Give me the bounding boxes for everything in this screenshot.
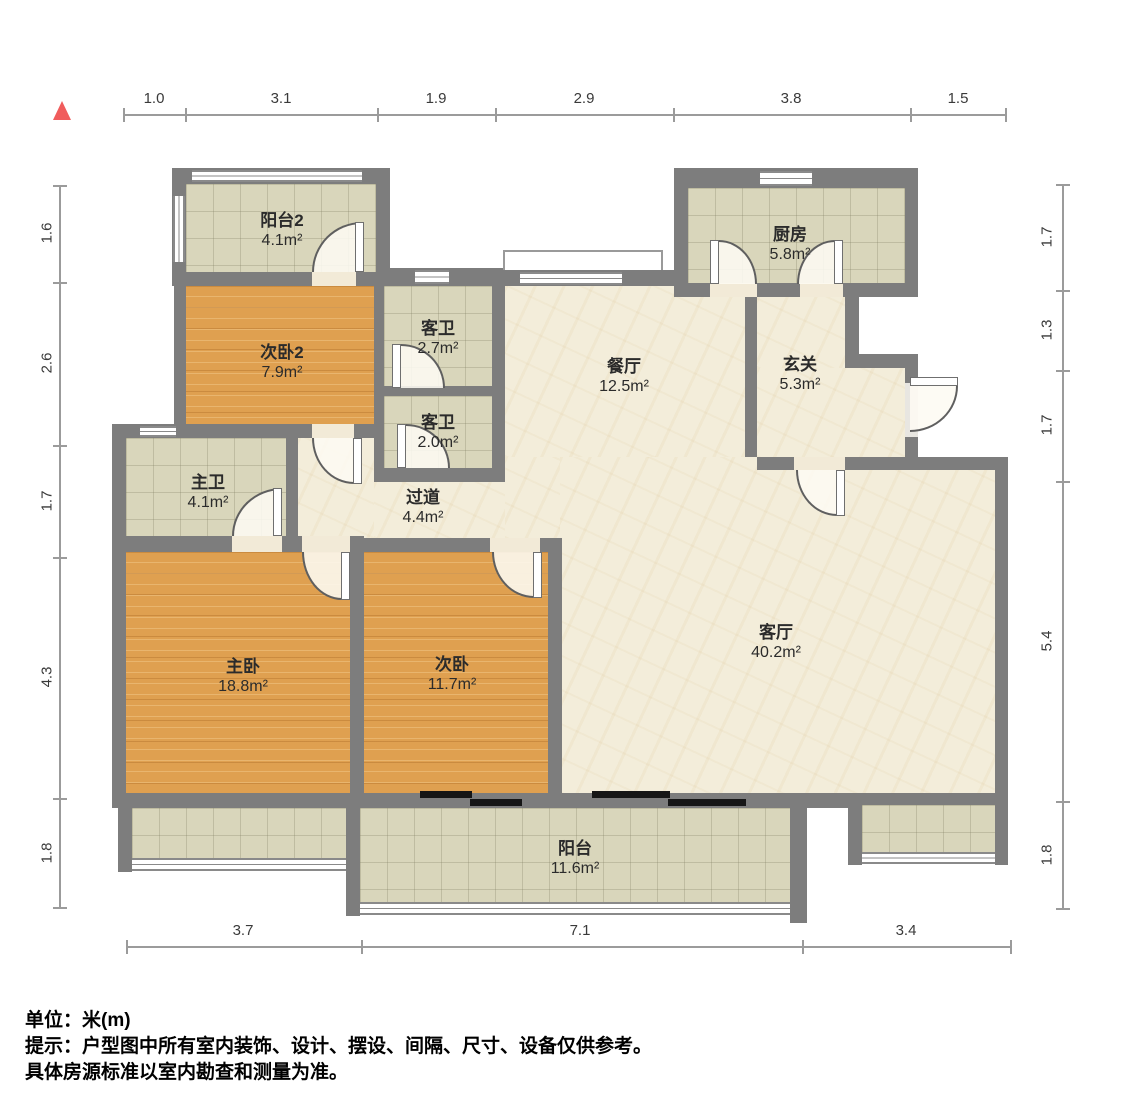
dimension-tick bbox=[1056, 184, 1070, 186]
room-area: 2.7m² bbox=[418, 339, 459, 359]
main-entry-door-leaf bbox=[910, 377, 958, 386]
room-floor-balcony-east bbox=[862, 805, 995, 852]
wall bbox=[374, 286, 384, 468]
window bbox=[140, 426, 176, 437]
dimension-label: 4.3 bbox=[39, 667, 56, 688]
sliding-door bbox=[470, 799, 522, 806]
room-area: 18.8m² bbox=[218, 677, 268, 697]
dimension-tick bbox=[53, 282, 67, 284]
window bbox=[520, 272, 622, 285]
wall bbox=[376, 184, 390, 272]
dimension-label: 1.7 bbox=[1039, 227, 1056, 248]
dimension-tick bbox=[53, 798, 67, 800]
dimension-tick bbox=[910, 108, 912, 122]
door-opening bbox=[232, 536, 282, 552]
wall bbox=[995, 470, 1008, 865]
wall bbox=[112, 536, 232, 552]
dimension-tick bbox=[1056, 370, 1070, 372]
wall bbox=[674, 188, 688, 297]
door-leaf bbox=[836, 470, 845, 516]
dimension-label: 1.3 bbox=[1039, 320, 1056, 341]
wall bbox=[790, 793, 807, 923]
dimension-line-left bbox=[59, 185, 61, 909]
dimension-tick bbox=[495, 108, 497, 122]
door-opening bbox=[800, 283, 843, 297]
window-rail bbox=[360, 902, 790, 915]
window bbox=[173, 196, 185, 262]
wall bbox=[845, 354, 918, 368]
wall bbox=[548, 538, 562, 793]
window-rail bbox=[132, 858, 346, 871]
room-area: 2.0m² bbox=[418, 433, 459, 453]
wall bbox=[848, 793, 862, 865]
room-name: 客厅 bbox=[751, 622, 801, 643]
room-area: 11.6m² bbox=[551, 859, 600, 879]
wall bbox=[757, 283, 800, 297]
wall bbox=[374, 468, 505, 482]
dimension-label: 7.1 bbox=[570, 922, 591, 939]
room-label-master-bath: 主卫 4.1m² bbox=[188, 472, 229, 513]
dimension-label: 2.6 bbox=[39, 353, 56, 374]
sliding-door bbox=[668, 799, 746, 806]
door-leaf bbox=[392, 344, 401, 388]
dimension-label: 3.4 bbox=[896, 922, 917, 939]
dimension-tick bbox=[123, 108, 125, 122]
window bbox=[760, 171, 812, 186]
dimension-tick bbox=[673, 108, 675, 122]
bay-window bbox=[503, 250, 663, 272]
room-label-bedroom2: 次卧2 7.9m² bbox=[260, 342, 303, 383]
dimension-label: 1.7 bbox=[39, 491, 56, 512]
dimension-label: 1.5 bbox=[948, 90, 969, 107]
door-leaf bbox=[834, 240, 843, 284]
room-name: 次卧 bbox=[428, 654, 477, 675]
dimension-tick bbox=[1056, 908, 1070, 910]
room-name: 客卫 bbox=[418, 412, 459, 433]
room-floor-planter bbox=[132, 808, 346, 858]
door-leaf bbox=[397, 424, 406, 468]
dimension-tick bbox=[1056, 290, 1070, 292]
door-leaf bbox=[353, 438, 362, 484]
footnotes: 单位：米(m) 提示：户型图中所有室内装饰、设计、摆设、间隔、尺寸、设备仅供参考… bbox=[25, 1008, 652, 1086]
room-label-dining: 餐厅 12.5m² bbox=[599, 356, 649, 397]
wall bbox=[745, 297, 757, 457]
wall bbox=[674, 283, 710, 297]
room-label-master-bedroom: 主卧 18.8m² bbox=[218, 656, 268, 697]
door-leaf bbox=[533, 552, 542, 598]
room-label-entry: 玄关 5.3m² bbox=[780, 354, 821, 395]
room-area: 4.4m² bbox=[403, 508, 444, 528]
dimension-line-bottom bbox=[126, 946, 1012, 948]
dimension-tick bbox=[802, 940, 804, 954]
north-triangle-icon bbox=[53, 101, 71, 120]
dimension-label: 1.6 bbox=[39, 223, 56, 244]
wall bbox=[364, 538, 490, 552]
room-area: 5.3m² bbox=[780, 375, 821, 395]
room-area: 5.8m² bbox=[770, 245, 811, 265]
room-area: 4.1m² bbox=[260, 231, 303, 251]
door-opening bbox=[312, 424, 354, 438]
wall bbox=[843, 283, 918, 297]
dimension-line-top bbox=[123, 114, 1007, 116]
dimension-tick bbox=[53, 907, 67, 909]
wall bbox=[112, 438, 126, 793]
room-name: 玄关 bbox=[780, 354, 821, 375]
wall bbox=[282, 536, 302, 552]
dimension-tick bbox=[377, 108, 379, 122]
dimension-tick bbox=[53, 185, 67, 187]
window bbox=[192, 170, 362, 182]
wall bbox=[286, 424, 298, 536]
sliding-door bbox=[420, 791, 472, 798]
dimension-tick bbox=[1005, 108, 1007, 122]
dimension-label: 2.9 bbox=[574, 90, 595, 107]
dimension-label: 1.8 bbox=[1039, 845, 1056, 866]
room-label-guest-bath-lower: 客卫 2.0m² bbox=[418, 412, 459, 453]
hint-note-2: 具体房源标准以室内勘查和测量为准。 bbox=[25, 1060, 652, 1086]
window bbox=[415, 270, 449, 284]
hint-note: 提示：户型图中所有室内装饰、设计、摆设、间隔、尺寸、设备仅供参考。 bbox=[25, 1034, 652, 1060]
room-name: 过道 bbox=[403, 487, 444, 508]
wall bbox=[905, 168, 918, 297]
door-opening bbox=[490, 538, 540, 552]
wall bbox=[757, 457, 794, 470]
door-leaf bbox=[710, 240, 719, 284]
room-name: 次卧2 bbox=[260, 342, 303, 363]
dimension-tick bbox=[53, 557, 67, 559]
main-entry-door-swing bbox=[910, 386, 958, 432]
door-opening bbox=[794, 457, 845, 470]
sliding-door bbox=[592, 791, 670, 798]
window-rail bbox=[862, 852, 995, 864]
dimension-tick bbox=[1056, 481, 1070, 483]
wall bbox=[354, 424, 382, 438]
door-opening bbox=[312, 272, 356, 286]
wall bbox=[174, 286, 186, 424]
dimension-label: 1.8 bbox=[39, 843, 56, 864]
room-name: 阳台 bbox=[551, 838, 600, 859]
room-name: 客卫 bbox=[418, 318, 459, 339]
room-label-balcony: 阳台 11.6m² bbox=[551, 838, 600, 879]
door-opening bbox=[302, 536, 350, 552]
dimension-label: 3.7 bbox=[233, 922, 254, 939]
room-label-balcony2: 阳台2 4.1m² bbox=[260, 210, 303, 251]
room-name: 餐厅 bbox=[599, 356, 649, 377]
dimension-tick bbox=[1010, 940, 1012, 954]
unit-note: 单位：米(m) bbox=[25, 1008, 652, 1034]
room-name: 阳台2 bbox=[260, 210, 303, 231]
dimension-tick bbox=[185, 108, 187, 122]
dimension-label: 1.0 bbox=[144, 90, 165, 107]
room-area: 12.5m² bbox=[599, 377, 649, 397]
dimension-tick bbox=[361, 940, 363, 954]
wall bbox=[172, 272, 390, 286]
dimension-label: 3.8 bbox=[781, 90, 802, 107]
room-label-guest-bath-upper: 客卫 2.7m² bbox=[418, 318, 459, 359]
wall bbox=[112, 793, 358, 808]
dimension-tick bbox=[1056, 801, 1070, 803]
floorplan-canvas: 阳台2 4.1m² 次卧2 7.9m² 客卫 2.7m² 客卫 2.0m² 餐厅… bbox=[0, 0, 1125, 1098]
dimension-label: 1.7 bbox=[1039, 415, 1056, 436]
room-area: 4.1m² bbox=[188, 493, 229, 513]
room-label-hallway: 过道 4.4m² bbox=[403, 487, 444, 528]
room-name: 主卧 bbox=[218, 656, 268, 677]
room-area: 7.9m² bbox=[260, 363, 303, 383]
room-label-kitchen: 厨房 5.8m² bbox=[770, 224, 811, 265]
wall bbox=[845, 457, 1008, 470]
room-label-living: 客厅 40.2m² bbox=[751, 622, 801, 663]
wall bbox=[286, 424, 312, 438]
wall bbox=[118, 808, 132, 872]
wall bbox=[492, 286, 505, 482]
dimension-label: 1.9 bbox=[426, 90, 447, 107]
room-area: 11.7m² bbox=[428, 675, 477, 695]
dimension-label: 3.1 bbox=[271, 90, 292, 107]
door-leaf bbox=[341, 552, 350, 600]
wall bbox=[848, 793, 995, 805]
wall bbox=[350, 536, 364, 793]
dimension-tick bbox=[126, 940, 128, 954]
door-leaf bbox=[355, 222, 364, 272]
wall bbox=[346, 793, 360, 916]
dimension-label: 5.4 bbox=[1039, 631, 1056, 652]
dimension-tick bbox=[53, 445, 67, 447]
door-opening bbox=[710, 283, 757, 297]
room-name: 厨房 bbox=[770, 224, 811, 245]
room-label-bedroom: 次卧 11.7m² bbox=[428, 654, 477, 695]
room-area: 40.2m² bbox=[751, 643, 801, 663]
room-floor-hallway-east bbox=[505, 457, 560, 538]
door-leaf bbox=[273, 488, 282, 536]
room-name: 主卫 bbox=[188, 472, 229, 493]
